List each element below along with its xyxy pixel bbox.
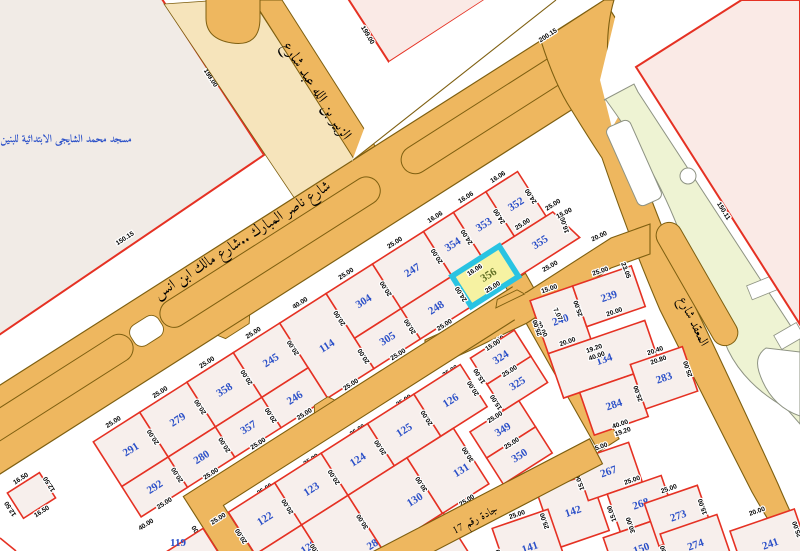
svg-text:119: 119 [170, 537, 186, 549]
